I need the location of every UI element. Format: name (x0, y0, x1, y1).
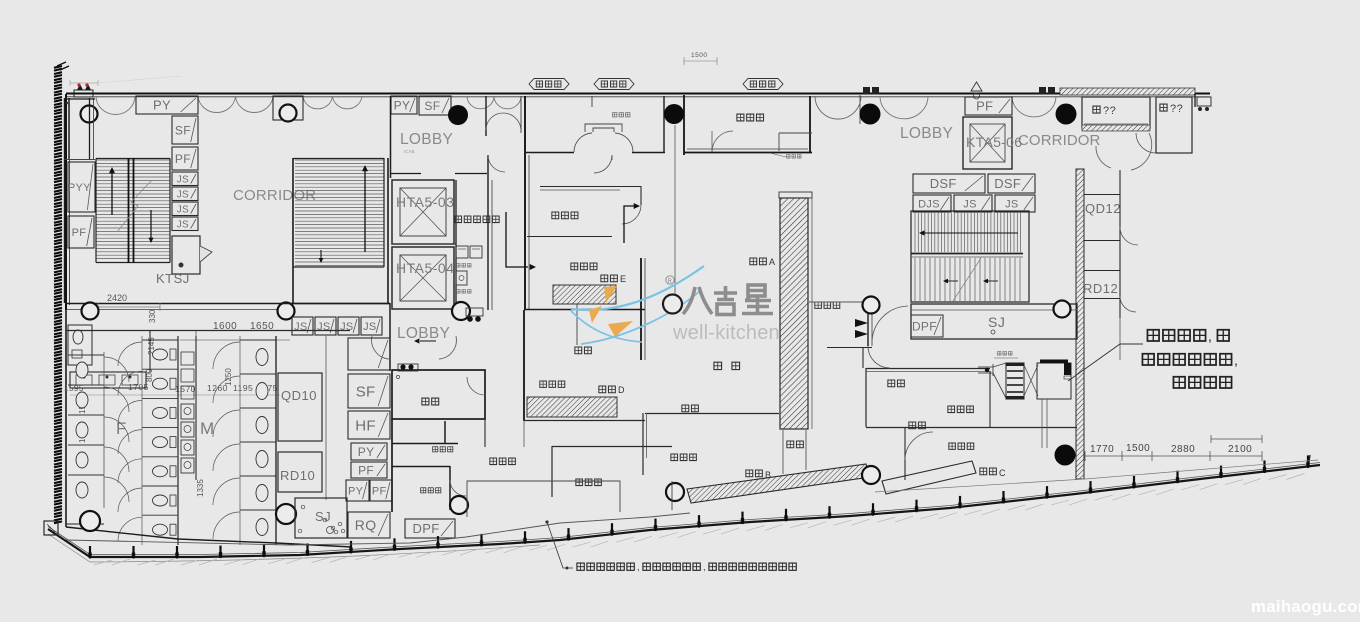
svg-text:LOBBY: LOBBY (400, 131, 453, 148)
svg-text:JS: JS (963, 199, 976, 211)
svg-text:KTSJ: KTSJ (156, 271, 190, 286)
svg-text:HF: HF (355, 417, 376, 434)
svg-text:C: C (999, 468, 1006, 478)
svg-text:RD10: RD10 (280, 468, 315, 483)
svg-text:PF: PF (372, 486, 387, 498)
svg-text:,: , (703, 562, 706, 572)
svg-text:SJ: SJ (988, 314, 1005, 330)
svg-text:DJS: DJS (918, 199, 940, 211)
svg-text:HTA5-04: HTA5-04 (396, 260, 454, 276)
svg-text:PF: PF (175, 152, 191, 166)
svg-text:PF: PF (358, 463, 374, 477)
svg-text:DPF: DPF (413, 521, 440, 536)
svg-text:well-kitchen: well-kitchen (672, 322, 780, 344)
svg-text:2420: 2420 (107, 293, 127, 303)
svg-text:,: , (637, 562, 640, 572)
svg-text:M: M (200, 419, 215, 438)
svg-text:1335: 1335 (196, 479, 205, 497)
svg-text:PYY: PYY (68, 182, 91, 194)
svg-text:JS: JS (177, 174, 189, 185)
svg-text:1195: 1195 (233, 383, 253, 393)
svg-text:JS: JS (1005, 199, 1018, 211)
svg-text:2100: 2100 (1228, 444, 1252, 455)
svg-text:RQ: RQ (355, 517, 377, 533)
svg-text:PY: PY (394, 98, 411, 112)
svg-text:PY: PY (358, 445, 375, 459)
svg-text:JS: JS (340, 321, 353, 333)
svg-text:??: ?? (1170, 103, 1183, 115)
svg-text:B: B (765, 470, 772, 480)
svg-text:ICAB: ICAB (404, 149, 415, 154)
svg-text:JS: JS (177, 204, 189, 215)
svg-text:DSF: DSF (994, 176, 1021, 191)
svg-text:PY: PY (153, 98, 171, 113)
svg-text:maihaogu.com: maihaogu.com (1251, 597, 1360, 616)
svg-text:DSF: DSF (930, 176, 957, 191)
svg-text:JS: JS (294, 321, 307, 333)
svg-text:LOBBY: LOBBY (397, 325, 450, 342)
svg-text:JS: JS (317, 321, 330, 333)
svg-text:SJ: SJ (315, 509, 331, 524)
svg-text:PF: PF (72, 227, 87, 239)
svg-text:SF: SF (424, 99, 440, 113)
svg-text:1770: 1770 (1090, 444, 1114, 455)
svg-text:JS: JS (177, 219, 189, 230)
svg-text:1500: 1500 (1126, 443, 1150, 454)
svg-text:,: , (1234, 352, 1238, 368)
svg-text:QD10: QD10 (281, 388, 317, 403)
svg-text:R: R (668, 279, 673, 285)
svg-text:PY: PY (348, 486, 364, 498)
svg-text:E: E (620, 274, 627, 284)
svg-text:HTA5-03: HTA5-03 (396, 194, 454, 210)
svg-text:LOBBY: LOBBY (900, 125, 953, 142)
svg-text:,: , (1208, 328, 1212, 344)
svg-text:1500: 1500 (691, 52, 707, 59)
svg-text:KTA5-06: KTA5-06 (966, 134, 1022, 150)
svg-text:DPF: DPF (912, 319, 937, 333)
svg-text:??: ?? (1103, 105, 1116, 117)
svg-text:330: 330 (148, 309, 157, 323)
svg-text:SF: SF (175, 123, 191, 137)
svg-text:SF: SF (356, 383, 376, 400)
svg-text:2880: 2880 (1171, 444, 1195, 455)
svg-text:A: A (769, 257, 776, 267)
svg-text:JS: JS (177, 189, 189, 200)
svg-text:CORRIDOR: CORRIDOR (1018, 132, 1101, 149)
svg-text:RD12: RD12 (1083, 281, 1118, 296)
svg-text:QD12: QD12 (1085, 201, 1121, 216)
svg-text:CORRIDOR: CORRIDOR (233, 187, 316, 204)
svg-text:PF: PF (976, 99, 993, 114)
svg-text:D: D (618, 385, 625, 395)
svg-text:JS: JS (363, 321, 376, 333)
